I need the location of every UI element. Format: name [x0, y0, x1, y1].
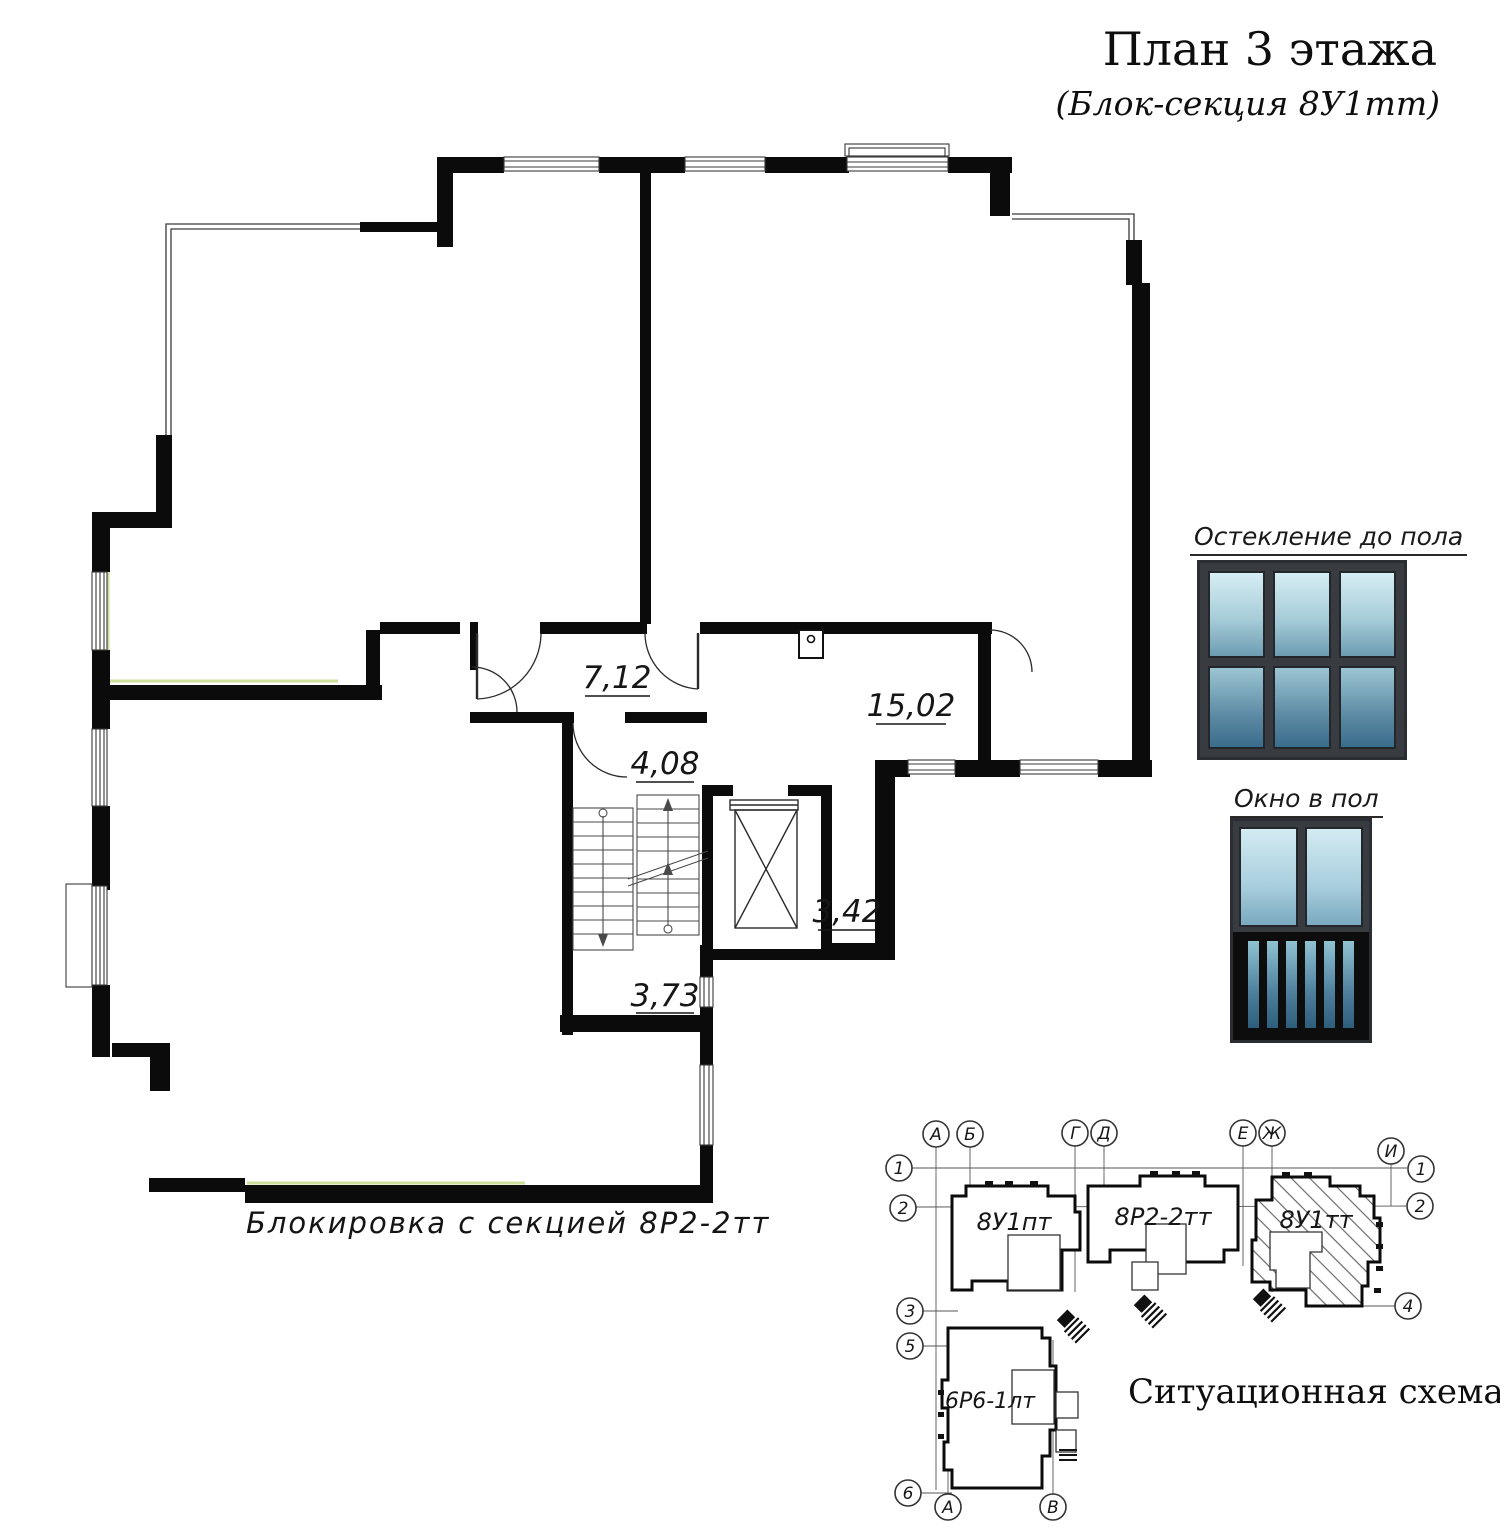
glass-pane — [1273, 571, 1330, 658]
axis-circle: 5 — [897, 1333, 923, 1359]
area-label-room-right: 15,02 — [867, 688, 956, 724]
svg-text:3: 3 — [905, 1302, 916, 1322]
window-top-1 — [504, 157, 599, 171]
area-label-corridor: 3,73 — [630, 978, 699, 1014]
svg-text:А: А — [941, 1498, 954, 1518]
floor-plan-drawing: 7,12 15,02 4,08 3,42 3,73 — [0, 0, 1500, 1534]
main-floor-plan: 7,12 15,02 4,08 3,42 3,73 — [66, 144, 1152, 1203]
axis-circle: Д — [1091, 1120, 1117, 1146]
floor-window-railing — [1233, 932, 1369, 1040]
svg-text:Е: Е — [1238, 1124, 1249, 1144]
glass-pane — [1339, 666, 1396, 749]
axis-circle: Ж — [1259, 1120, 1285, 1146]
window-inner-1 — [700, 977, 713, 1007]
svg-text:1: 1 — [1416, 1160, 1427, 1180]
svg-text:Б: Б — [964, 1125, 976, 1145]
axis-circle: Б — [957, 1121, 983, 1147]
axis-circle: 2 — [890, 1195, 916, 1221]
svg-text:Г: Г — [1070, 1124, 1081, 1144]
axis-circle: А — [935, 1494, 961, 1520]
axis-circle: А — [923, 1121, 949, 1147]
axis-circle: 1 — [1408, 1156, 1434, 1182]
svg-text:И: И — [1385, 1142, 1398, 1162]
glazing-accent-lines — [108, 540, 525, 1183]
svg-text:В: В — [1047, 1498, 1059, 1518]
axis-circle: 6 — [895, 1480, 921, 1506]
windows — [66, 144, 1098, 1145]
legend-floor-window — [1230, 818, 1372, 1043]
glass-pane — [1208, 571, 1265, 658]
section-label-8r2-2tt: 8Р2-2тт — [1115, 1203, 1213, 1231]
section-label-8u1tt: 8У1тт — [1279, 1206, 1353, 1234]
axis-circle: И — [1378, 1138, 1404, 1164]
axis-circle: В — [1040, 1494, 1066, 1520]
axis-circle: Е — [1230, 1120, 1256, 1146]
window-left-1 — [92, 572, 107, 650]
floor-window-glass — [1233, 821, 1369, 927]
axis-circle: Г — [1062, 1120, 1088, 1146]
area-label-stair-lobby: 4,08 — [630, 746, 699, 782]
glass-pane — [1239, 827, 1298, 927]
stair-flight-up — [628, 795, 708, 935]
svg-text:6: 6 — [903, 1484, 914, 1504]
axis-circle: 4 — [1395, 1293, 1421, 1319]
legend-full-glazing-window — [1197, 560, 1407, 760]
glass-pane — [1208, 666, 1265, 749]
section-label-8u1pt: 8У1пт — [977, 1208, 1053, 1236]
panel-icon — [799, 630, 823, 658]
situational-scheme: 8У1пт 8Р2-2тт 8У1тт 6Р6-1лт А Б Г — [886, 1120, 1434, 1520]
axis-circle: 2 — [1407, 1193, 1433, 1219]
svg-text:2: 2 — [1415, 1197, 1426, 1217]
legend-full-glazing-title: Остекление до пола — [1190, 522, 1414, 556]
window-top-2 — [685, 157, 765, 171]
drawing-sheet: 7,12 15,02 4,08 3,42 3,73 — [0, 0, 1500, 1534]
window-inner-2 — [700, 1065, 713, 1145]
window-bottom-2 — [1020, 760, 1098, 774]
area-label-elevator-hall: 3,42 — [812, 894, 881, 930]
scheme-title: Ситуационная схема — [1128, 1372, 1500, 1412]
sheet-title: План 3 этажа — [1103, 22, 1437, 76]
svg-text:4: 4 — [1403, 1297, 1414, 1317]
elevator — [730, 800, 798, 928]
glass-pane — [1339, 571, 1396, 658]
window-top-bay — [845, 144, 949, 171]
svg-text:5: 5 — [905, 1337, 916, 1357]
sheet-subtitle: (Блок-секция 8У1тт) — [1056, 84, 1441, 123]
window-bottom-1 — [908, 760, 955, 774]
legend-floor-window-title: Окно в пол — [1230, 784, 1372, 818]
area-label-hall: 7,12 — [582, 660, 651, 696]
window-left-bay — [66, 884, 107, 987]
section-label-6r6-1lt: 6Р6-1лт — [945, 1389, 1036, 1414]
axis-circle: 3 — [897, 1298, 923, 1324]
blocking-note: Блокировка с секцией 8Р2-2тт — [246, 1206, 770, 1240]
window-left-2 — [92, 729, 107, 806]
axis-circle: 1 — [886, 1155, 912, 1181]
svg-text:1: 1 — [894, 1159, 905, 1179]
glass-pane — [1305, 827, 1364, 927]
stair-flight-down — [573, 808, 633, 950]
svg-text:Ж: Ж — [1262, 1124, 1282, 1144]
stairs — [573, 795, 708, 950]
svg-text:2: 2 — [898, 1199, 909, 1219]
svg-text:А: А — [929, 1125, 942, 1145]
svg-text:Д: Д — [1096, 1124, 1110, 1144]
glass-pane — [1273, 666, 1330, 749]
